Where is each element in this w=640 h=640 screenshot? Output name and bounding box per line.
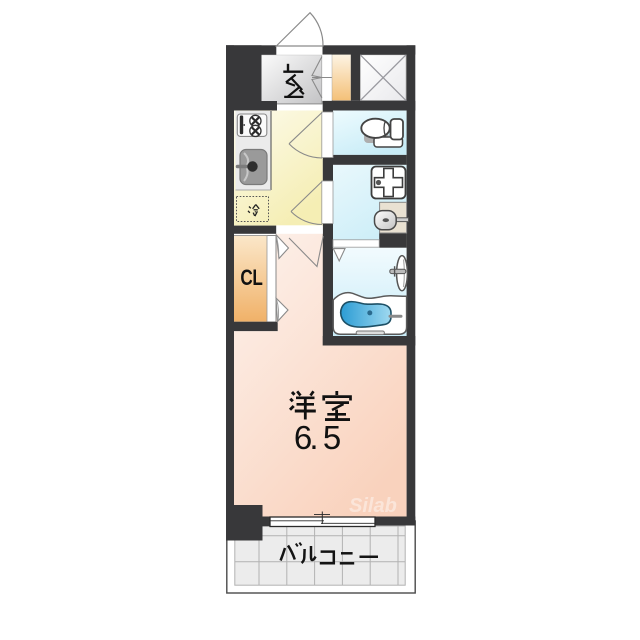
svg-text:.: . (309, 419, 318, 456)
svg-text:5: 5 (323, 419, 341, 456)
svg-text:Silab: Silab (349, 495, 397, 517)
svg-text:CL: CL (240, 266, 262, 291)
